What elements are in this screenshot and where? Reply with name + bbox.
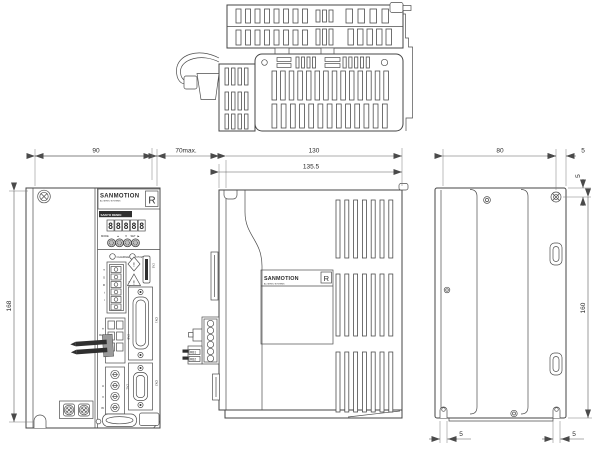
top-din-clip	[390, 3, 411, 13]
dim-back-width: 80	[496, 148, 504, 155]
down-button	[124, 239, 132, 247]
display-digit: 8	[108, 222, 113, 232]
terminal-label: S	[103, 276, 105, 280]
side-top-clip	[399, 184, 408, 191]
dim-back-offset-top: 5	[575, 174, 582, 178]
top-front-block	[219, 64, 255, 131]
set-button	[132, 239, 140, 247]
rb2-pin-label: RB2	[190, 358, 196, 362]
rb1-pin-label: RB1	[190, 351, 196, 355]
front-view: SANMOTION AC SERVO SYSTEMS R SANYO DENKI…	[26, 188, 160, 428]
cnb-label: CNB	[127, 334, 131, 340]
display-digit: 8	[116, 222, 121, 232]
side-brand-mark: R	[324, 274, 330, 283]
key-set-label: SET	[131, 234, 136, 238]
dim-back-slot-right: 5	[572, 431, 576, 438]
drawing-svg: SANMOTION AC SERVO SYSTEMS R SANYO DENKI…	[0, 0, 600, 449]
terminal-label: r	[104, 298, 105, 302]
dim-front-height: 168	[6, 300, 13, 311]
key-up-label: ▲	[117, 235, 120, 238]
side-view: SANMOTION AC SERVO SYSTEMS R RB1	[183, 184, 409, 419]
key-down-label: ▼	[125, 235, 128, 238]
cn2-label: CN2	[155, 380, 159, 386]
front-brand-sub-text: AC SERVO SYSTEMS	[100, 200, 121, 203]
front-bottom-connectors	[96, 413, 159, 427]
dim-back-height: 160	[580, 302, 587, 313]
cn1-label: CN1	[155, 317, 159, 323]
charge-led	[110, 254, 116, 260]
side-brand-text: SANMOTION	[264, 276, 299, 282]
dim-side-clearance: 70max.	[175, 148, 197, 155]
dimension-drawing: SANMOTION AC SERVO SYSTEMS R SANYO DENKI…	[0, 0, 600, 449]
front-brand-mark: R	[148, 196, 155, 207]
dim-back-slot-left: 5	[459, 431, 463, 438]
rb-jumper-plug: RB1 RB2	[183, 346, 203, 364]
top-tab-right	[321, 48, 334, 54]
motor-terminal-label: V	[102, 395, 104, 399]
front-brand-text: SANMOTION	[100, 194, 139, 200]
motor-terminal-label: U	[102, 384, 104, 388]
seven-segment-display: 8 8 8 8 8	[107, 220, 145, 232]
motor-terminal-label: W	[101, 406, 104, 410]
top-right-step-edge	[403, 14, 413, 131]
back-view	[435, 188, 566, 421]
mode-button	[108, 239, 116, 247]
cn3-label: CN3	[152, 263, 156, 269]
side-front-protrusions: RB1 RB2	[183, 252, 220, 400]
side-brand-sub-text: AC SERVO SYSTEMS	[264, 282, 285, 285]
side-vent-slats	[336, 200, 393, 412]
dim-front-width: 90	[92, 148, 100, 155]
dim-side-depth-total: 135.5	[303, 164, 320, 171]
top-jumper-cable	[176, 53, 219, 100]
up-button	[116, 239, 124, 247]
front-bottom-screws	[60, 401, 94, 419]
charge-led-label: CHARGE	[117, 255, 130, 259]
display-digit: 8	[139, 222, 144, 232]
display-digit: 8	[124, 222, 129, 232]
top-tab-left	[275, 48, 289, 54]
top-view	[176, 3, 412, 132]
key-mode-label: MODE	[101, 234, 109, 238]
display-digit: 8	[131, 222, 136, 232]
dim-side-depth-body: 130	[309, 148, 320, 155]
maker-label-text: SANYO DENKI	[101, 213, 122, 217]
front-mounting-screw	[38, 190, 51, 203]
maker-label: SANYO DENKI	[99, 211, 132, 217]
front-foot-notch	[34, 415, 46, 428]
dim-back-offset-right: 5	[581, 148, 585, 155]
terminal-label: T	[103, 268, 105, 272]
